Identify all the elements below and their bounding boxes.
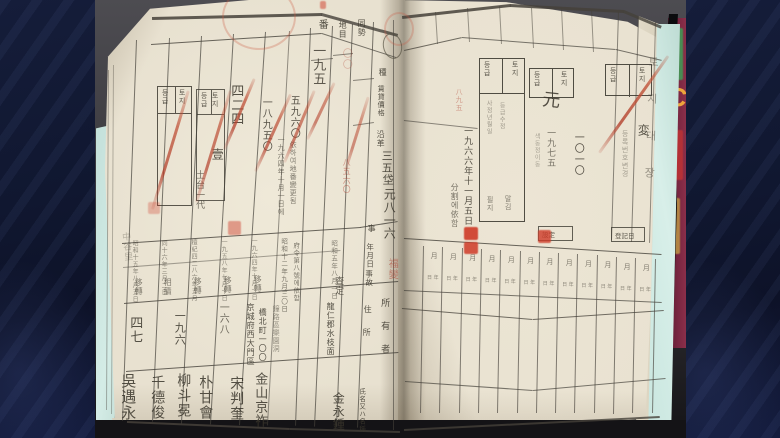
date-col-day-year-label: 日 年 (581, 282, 593, 289)
date-col-month-label: 月 (449, 253, 456, 261)
date-col-day-year-label: 日 年 (601, 283, 613, 290)
date-col-day-year-label: 日 年 (466, 276, 478, 283)
owner-name-3: 朴甘會 (198, 375, 212, 420)
handwritten-text: 昭和十二年九月三〇日 (280, 238, 287, 313)
date-col-month-label: 月 (527, 257, 534, 265)
col-header-area: 同勢 (357, 19, 365, 37)
area-value-2: 一九六 (174, 310, 185, 346)
col-header-item: 事 (367, 224, 375, 233)
handwritten-text: 査定 (333, 276, 342, 296)
handwritten-text: 등록번호변경 (621, 130, 628, 178)
area-value-3: 一六八 (217, 302, 227, 335)
red-seal-faint-2 (148, 202, 160, 214)
date-col-day-year-label: 日 年 (620, 285, 632, 292)
handwritten-text: 三五 (381, 150, 392, 174)
date-col-day-year-label: 日 年 (639, 286, 651, 293)
handwritten-text: 말김 (504, 195, 511, 211)
handwritten-text: 移轉 (223, 276, 231, 294)
date-col-month-label: 月 (565, 259, 572, 267)
owner-name-1: 金山京祚 (253, 372, 266, 428)
date-col-month-label: 月 (546, 258, 553, 266)
handwritten-text: 垈 (382, 174, 393, 186)
handwritten-text: 一九五 (311, 44, 324, 86)
date-col-month-label: 月 (430, 252, 437, 260)
owner-name-2: 宋判奎 (229, 376, 243, 421)
col-header-land-category: 地目 (338, 21, 346, 39)
handwritten-text: 相續 (163, 278, 171, 296)
handwritten-text: 一九七五 (545, 128, 554, 168)
owner-name-0: 金永鍾 (332, 392, 344, 431)
date-col-month-label: 月 (584, 260, 591, 268)
stamp-label-deunggeup: 등급 (483, 61, 490, 77)
pillarbox-bar-right (686, 0, 780, 438)
grade-entry: 元 (539, 89, 559, 110)
stamp-box-divider (158, 113, 191, 114)
handwritten-text: 八九五 (455, 88, 462, 112)
stamp-label-toji: 토지 (638, 67, 645, 83)
date-col-month-label: 月 (469, 254, 476, 262)
owner-name-4: 柳斗冕 (176, 373, 190, 418)
handwritten-text: 移轉 (134, 278, 142, 296)
date-col-day-year-label: 日 年 (427, 274, 439, 281)
col-header-event: 事故 (365, 270, 373, 287)
stamp-label: 登記日 (615, 230, 635, 240)
date-col-day-year-label: 日 年 (543, 280, 555, 287)
date-col-month-label: 月 (507, 256, 514, 264)
date-col-month-label: 月 (604, 261, 611, 269)
red-seal-bottom (464, 242, 478, 254)
handwritten-text: 府令第八號에依함 (292, 242, 299, 302)
news-still-frame: C 月日 年月日 年月日 年月日 年月日 年月日 年月日 年月日 年月日 年月日… (0, 0, 780, 438)
owner-address-2: 橋北町一〇〇 (258, 308, 266, 362)
handwritten-text: 색동정이동 (533, 133, 539, 168)
stamp-label-toji: 토지 (560, 71, 567, 87)
left-fore-edge-label: 中谷里 (119, 232, 131, 263)
stamp-box-divider (197, 114, 224, 115)
stamp-label-deunggeup: 등급 (200, 92, 207, 108)
handwritten-text: 등급수정 (498, 102, 504, 130)
stamp-box-split (502, 59, 503, 93)
owner-address-3: 龍仁郡水枝面 (326, 302, 334, 356)
stamp-label-toji: 토지 (511, 61, 518, 77)
stamp-label-deunggeup: 등급 (609, 67, 616, 83)
owner-name-5: 千德俊 (150, 375, 164, 420)
date-col-month-label: 月 (623, 263, 630, 271)
pillarbox-bar-left (0, 0, 95, 438)
col-header-rental-value: 賃貸價格 (377, 85, 384, 117)
handwritten-text: 分割에依함 (450, 183, 458, 228)
handwritten-text: 사정년월일 (485, 100, 491, 135)
division-note-date: 一九六六年十一月五日 (462, 126, 471, 226)
handwritten-text: 一九六四年十月一日에 (277, 136, 284, 216)
col-header-date: 年月日 (366, 243, 374, 269)
red-seal-top (464, 227, 478, 240)
stamp-box-split (629, 65, 630, 97)
col-header-address-1: 住 (363, 305, 371, 314)
stamp-box-divider (480, 93, 524, 94)
handwritten-text: 元八一六 (383, 188, 395, 240)
handwritten-text: 福變 (386, 258, 396, 280)
handwritten-text: 一〇一〇 (572, 132, 582, 176)
stamp-label-toji: 토지 (211, 92, 218, 108)
handwritten-text: 〇〇 (340, 48, 350, 70)
date-col-day-year-label: 日 年 (562, 281, 574, 288)
col-header-class: 種 (378, 68, 386, 77)
col-header-name: 氏名又ハ名稱 (358, 388, 365, 433)
stamp-label-deunggeup: 등급 (161, 89, 168, 105)
owner-name-6: 吳遇永 (120, 373, 135, 421)
handwritten-text: 필지 (486, 196, 493, 212)
red-seal-faint-1 (228, 221, 241, 235)
col-header-lot-number: 番 (316, 19, 326, 30)
owner-address-1: 京城府西大門區 (246, 303, 254, 366)
stamp-label-deunggeup: 등급 (533, 71, 540, 87)
area-value-1: 四七 (128, 316, 141, 344)
col-header-history: 沿革 (376, 130, 384, 148)
stamp-box-split (175, 87, 176, 113)
date-col-day-year-label: 日 年 (504, 278, 516, 285)
red-seal-small (538, 230, 551, 243)
date-col-day-year-label: 日 年 (524, 279, 536, 286)
date-col-month-label: 月 (642, 264, 649, 272)
col-header-address-2: 所 (362, 328, 370, 337)
date-col-day-year-label: 日 年 (485, 277, 497, 284)
date-col-day-year-label: 日 年 (446, 275, 458, 282)
handwritten-text: 移轉 (253, 275, 261, 293)
date-col-month-label: 月 (488, 255, 495, 263)
red-dot-mark (320, 1, 326, 9)
handwritten-text: 鐘路區樂園洞 (272, 305, 279, 353)
col-header-owner: 所有者 (379, 298, 388, 367)
handwritten-text: 移轉 (193, 277, 201, 295)
